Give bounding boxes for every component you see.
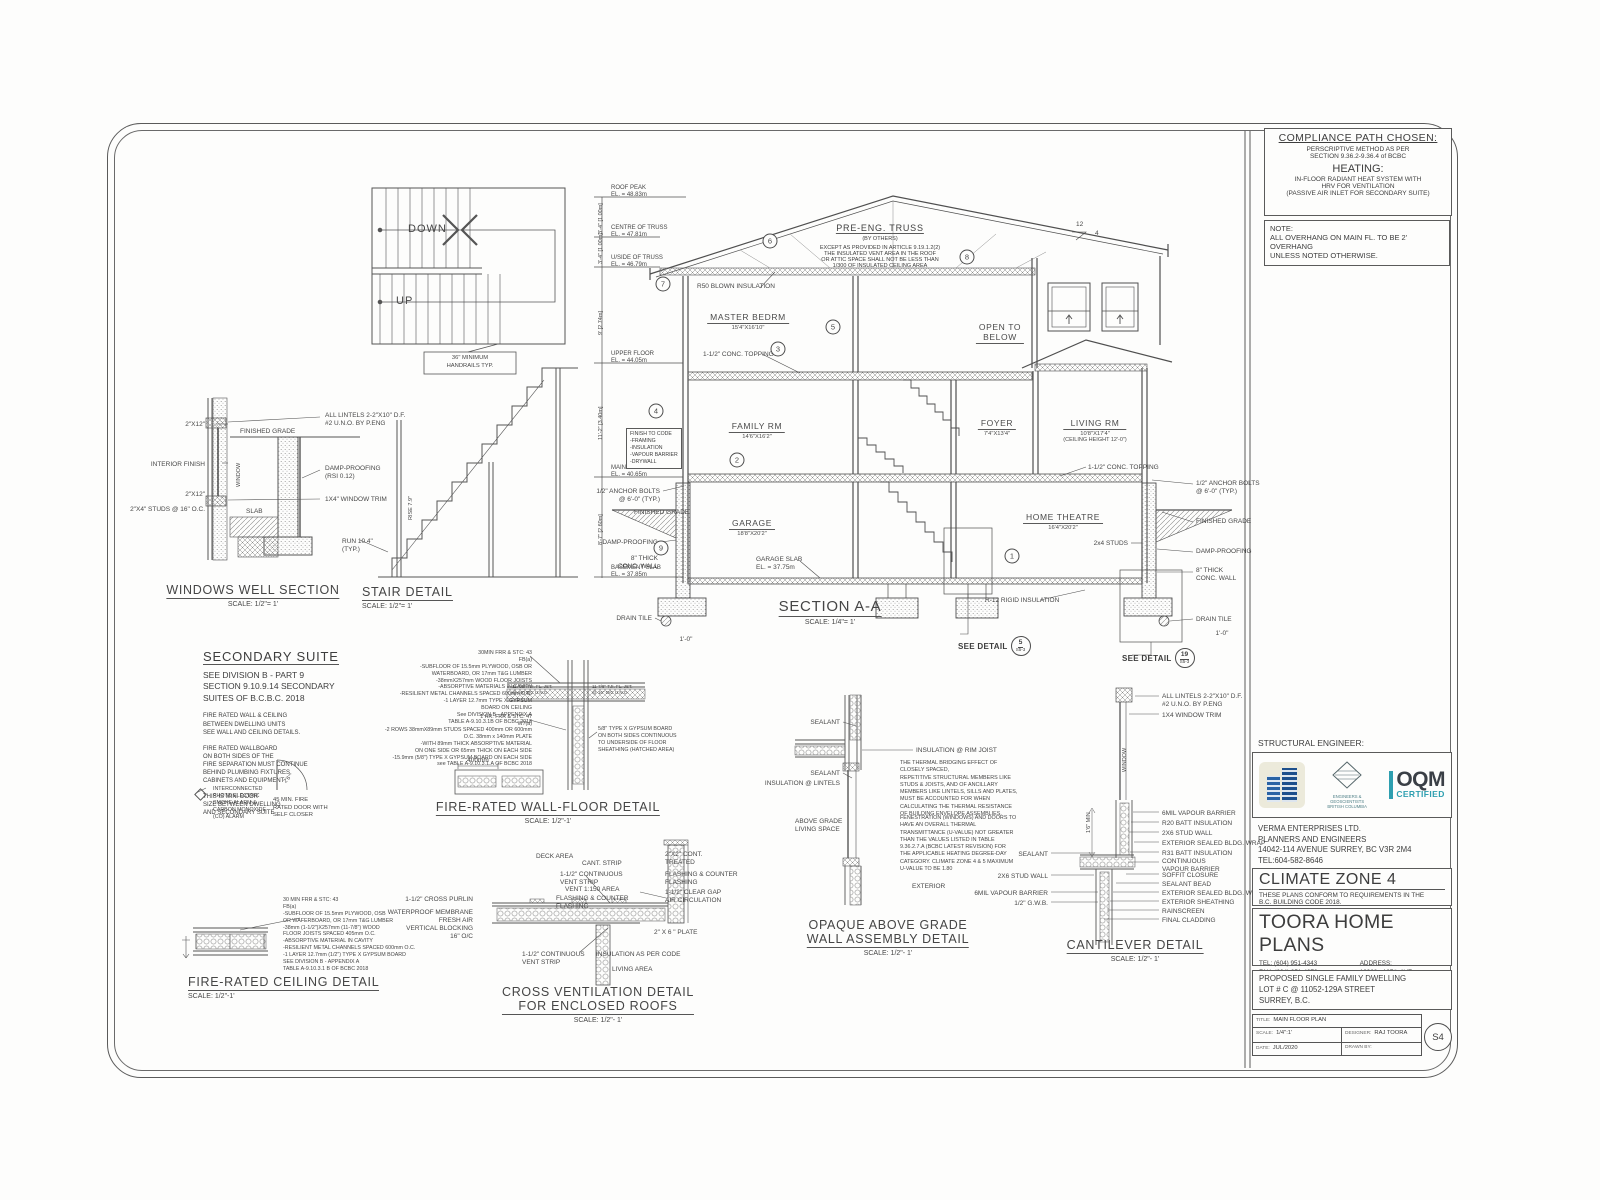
title-table: TITLE: MAIN FLOOR PLAN SCALE: 1/4":1' DE…: [1252, 1014, 1422, 1056]
company-tel: TEL: (604) 951-4343: [1259, 959, 1350, 968]
see-detail-callout-2: SEE DETAIL 19 S5-3: [1122, 648, 1195, 668]
finish-to-code-box: FINISH TO CODE -FRAMING -INSULATION -VAP…: [626, 428, 682, 469]
room-master-bedrm: MASTER BEDRM 15'4"X16'10": [707, 312, 789, 331]
section-title: SECTION A-A SCALE: 1/4"= 1': [779, 598, 882, 626]
room-family-rm: FAMILY RM 14'6"X16'2": [729, 421, 785, 440]
climate-zone-text: THESE PLANS CONFORM TO REQUIREMENTS IN T…: [1259, 892, 1445, 906]
door-note: 45 MIN. FIRE RATED DOOR WITH SELF CLOSER: [273, 797, 328, 820]
secondary-suite-title: SECONDARY SUITE: [203, 649, 339, 665]
climate-zone-title: CLIMATE ZONE 4: [1259, 871, 1445, 890]
truss-sub: (BY OTHERS): [820, 236, 940, 242]
fwf-gypsum: 5/8" TYPE X GYPSUM BOARD ON BOTH SIDES C…: [598, 726, 677, 754]
fwf-joist1: 11-7/8" TJI. FL. JST. @ 16" O/C U.N.O.: [512, 684, 552, 696]
designer-value: RAJ TOORA: [1374, 1030, 1407, 1036]
engineer-logos-box: ENGINEERS & GEOSCIENTISTS BRITISH COLUMB…: [1252, 752, 1452, 818]
verma-buildings-logo-icon: [1259, 762, 1305, 808]
oqm-certified-logo: OQM CERTIFIED: [1389, 771, 1445, 800]
stair-plan-up-label: UP: [396, 294, 413, 308]
fire-wall-floor-title: FIRE-RATED WALL-FLOOR DETAIL SCALE: 1/2"…: [436, 800, 660, 825]
oqm-bar-icon: [1389, 771, 1393, 800]
secondary-suite-p1: FIRE RATED WALL & CEILING BETWEEN DWELLI…: [203, 712, 339, 736]
title-label: TITLE:: [1256, 1018, 1270, 1023]
diamond-icon: [1332, 761, 1362, 789]
compliance-box: COMPLIANCE PATH CHOSEN: PERSCRIPTIVE MET…: [1264, 128, 1452, 216]
compliance-title: COMPLIANCE PATH CHOSEN:: [1265, 132, 1451, 144]
title-value: MAIN FLOOR PLAN: [1273, 1017, 1326, 1023]
engineers-geoscientists-logo: ENGINEERS & GEOSCIENTISTS BRITISH COLUMB…: [1318, 761, 1376, 809]
fwf-mid: 1 HR. FRR & STC: 47 W7(a): [480, 714, 532, 728]
compliance-line2: SECTION 9.36.2-9.36.4 of BCBC: [1265, 153, 1451, 160]
windows-well-title: WINDOWS WELL SECTION SCALE: 1/2"= 1': [166, 583, 339, 608]
fire-ceiling-title: FIRE-RATED CEILING DETAIL SCALE: 1/2"-1': [188, 975, 379, 1000]
truss-note-block: PRE-ENG. TRUSS (BY OTHERS) EXCEPT AS PRO…: [820, 218, 940, 269]
project-box: PROPOSED SINGLE FAMILY DWELLING LOT # C …: [1252, 970, 1452, 1010]
compliance-line1: PERSCRIPTIVE METHOD AS PER: [1265, 146, 1451, 153]
blueprint-sheet: 2"X12"INTERIOR FINISH2"X12"2"X4" STUDS @…: [0, 0, 1600, 1200]
room-foyer: FOYER 7'4"X13'4": [978, 418, 1016, 437]
fwf-block2: -2 ROWS 38mmX89mm STUDS SPACED 400mm OR …: [385, 727, 532, 768]
detail-bubble-icon: 19 S5-3: [1175, 648, 1195, 668]
scale-label: SCALE:: [1256, 1031, 1273, 1036]
fc-block: 30 MIN FRR & STC: 43 FB(a) -SUBFLOOR OF …: [283, 897, 415, 973]
date-value: JUL/2020: [1273, 1045, 1298, 1051]
room-open-to-below: OPEN TO BELOW: [976, 322, 1024, 344]
engineer-firm-block: VERMA ENTERPRISES LTD. PLANNERS AND ENGI…: [1252, 824, 1452, 866]
cantilever-title: CANTILEVER DETAIL SCALE: 1/2"- 1': [1067, 938, 1204, 963]
climate-zone-box: CLIMATE ZONE 4 THESE PLANS CONFORM TO RE…: [1252, 868, 1452, 906]
opaque-para1: THE THERMAL BRIDGING EFFECT OF CLOSELY S…: [900, 760, 1017, 818]
secondary-suite-p2: FIRE RATED WALLBOARD ON BOTH SIDES OF TH…: [203, 745, 339, 785]
company-box: TOORA HOME PLANS TEL: (604) 951-4343 FAX…: [1252, 908, 1452, 966]
secondary-suite-sub: SEE DIVISION B - PART 9 SECTION 9.10.9.1…: [203, 670, 339, 704]
fwf-joist2: 11-7/8" TJI. FL. JST. @ 16" O/C U.N.O.: [592, 684, 632, 696]
fwf-dim400: 400mm: [467, 757, 489, 765]
note-box: NOTE: ALL OVERHANG ON MAIN FL. TO BE 2' …: [1264, 220, 1450, 266]
drawnby-label: DRAWN BY:: [1345, 1045, 1372, 1050]
see-detail-callout-1: SEE DETAIL 5 S5-3: [958, 636, 1031, 656]
heating-title: HEATING:: [1265, 163, 1451, 175]
handrail-note: 36" MINIMUM HANDRAILS TYP.: [447, 355, 494, 370]
room-garage: GARAGE 18'8"X20'2": [729, 518, 775, 537]
project-text: PROPOSED SINGLE FAMILY DWELLING LOT # C …: [1259, 974, 1445, 1007]
scale-value: 1/4":1': [1276, 1030, 1292, 1036]
room-home-theatre: HOME THEATRE 16'4"X20'2": [1023, 512, 1103, 531]
truss-title: PRE-ENG. TRUSS: [836, 223, 924, 234]
cross-vent-title: CROSS VENTILATION DETAIL FOR ENCLOSED RO…: [502, 985, 694, 1024]
note-label: NOTE:: [1270, 224, 1444, 233]
note-text: ALL OVERHANG ON MAIN FL. TO BE 2' OVERHA…: [1270, 233, 1444, 260]
company-address-label: ADDRESS:: [1360, 959, 1427, 968]
stair-plan-down-label: DOWN: [408, 222, 447, 236]
stair-detail-title: STAIR DETAIL SCALE: 1/2"= 1': [362, 585, 453, 610]
structural-engineer-label: STRUCTURAL ENGINEER:: [1252, 738, 1452, 748]
structural-engineer-label-wrap: STRUCTURAL ENGINEER:: [1252, 738, 1452, 748]
detail-bubble-icon: 5 S5-3: [1011, 636, 1031, 656]
opaque-para2: FENESTRATION (WINDOWS) AND DOORS TO HAVE…: [900, 815, 1016, 873]
opaque-wall-title: OPAQUE ABOVE GRADE WALL ASSEMBLY DETAIL …: [807, 918, 969, 957]
designer-label: DESIGNER:: [1345, 1031, 1371, 1036]
truss-note: EXCEPT AS PROVIDED IN ARTICLE 9.19.1.2(2…: [820, 245, 940, 269]
heating-line2: HRV FOR VENTILATION: [1265, 183, 1451, 190]
heating-line3: (PASSIVE AIR INLET FOR SECONDARY SUITE): [1265, 190, 1451, 197]
date-label: DATE:: [1256, 1046, 1270, 1051]
sheet-number-badge: S4: [1424, 1023, 1452, 1051]
room-living-rm: LIVING RM 10'8"X17'4" (CEILING HEIGHT 12…: [1063, 418, 1126, 443]
alarm-note: INTERCONNECTED PHOTO ELECTRIC SMOKE ALAR…: [213, 786, 266, 820]
company-name: TOORA HOME PLANS: [1259, 911, 1445, 957]
heating-line1: IN-FLOOR RADIANT HEAT SYSTEM WITH: [1265, 176, 1451, 183]
